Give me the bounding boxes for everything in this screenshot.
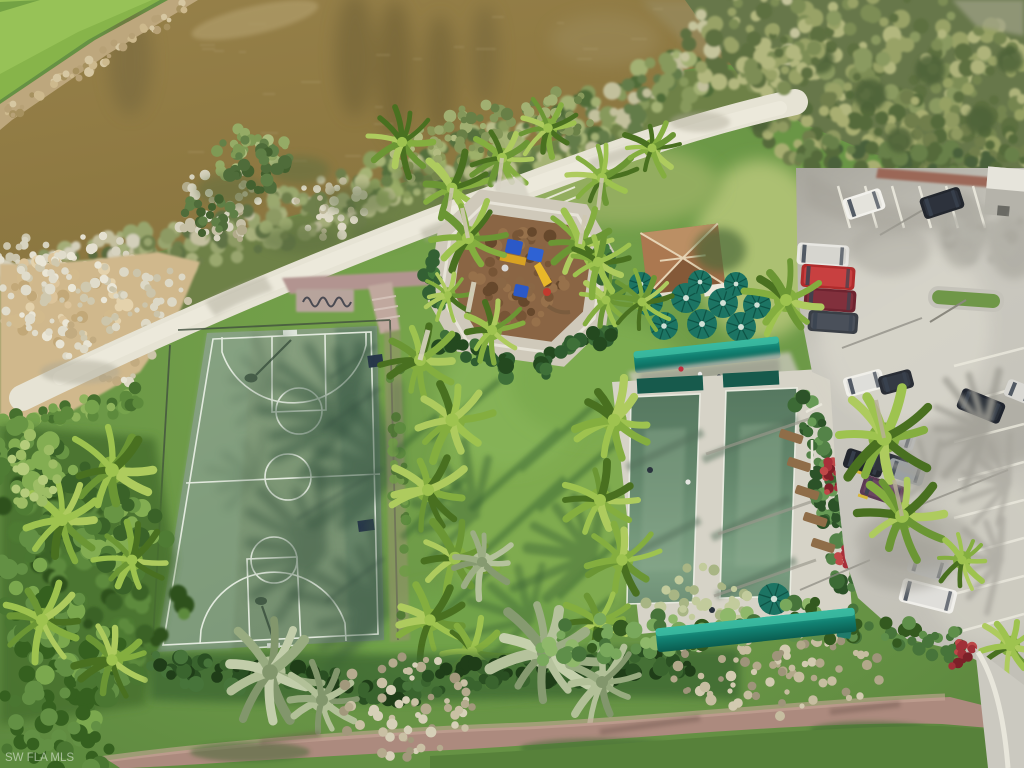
svg-text:SW FLA MLS: SW FLA MLS (5, 752, 74, 764)
